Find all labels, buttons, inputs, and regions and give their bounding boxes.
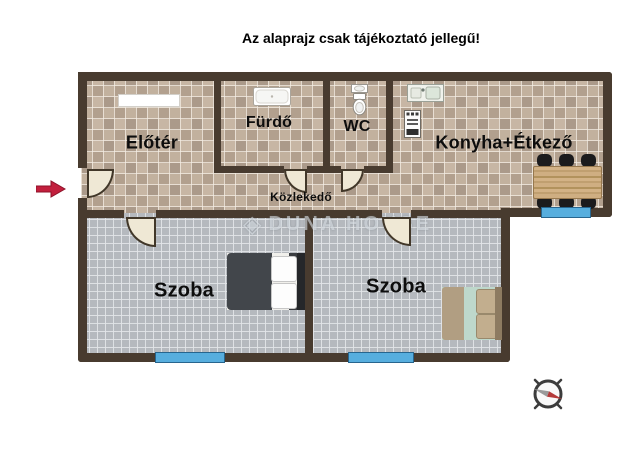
window-kitchen — [541, 207, 591, 218]
bed-icon — [227, 253, 305, 310]
room-label-szoba-1: Szoba — [154, 280, 214, 303]
wall-wet-bottom-c — [364, 166, 393, 173]
entrance-arrow-icon — [36, 180, 66, 198]
wall-left-upper — [78, 72, 87, 168]
wall-wc-right — [386, 77, 393, 173]
bed-headboard — [495, 287, 502, 340]
room-label-szoba-2: Szoba — [366, 276, 426, 299]
stove-icon — [404, 110, 421, 138]
window-szoba1 — [155, 352, 225, 363]
hall-cabinet-icon — [118, 94, 180, 107]
wall-left-lower — [78, 198, 87, 362]
bed-headboard — [297, 253, 305, 310]
wall-szoba2-right — [501, 208, 510, 362]
wall-furdo-left — [214, 77, 221, 173]
room-label-elotér: Előtér — [126, 133, 178, 154]
room-label-wc: WC — [343, 118, 370, 136]
wall-bottom — [78, 353, 510, 362]
bed-pillow — [271, 256, 297, 282]
dining-table-icon — [533, 166, 602, 199]
floor-plan: Az alaprajz csak tájékoztató jellegű! ◈ … — [0, 0, 640, 450]
room-label-furdo: Fürdő — [246, 114, 292, 132]
diamond-icon: ◈ — [243, 215, 261, 235]
room-label-konyha-etkezo: Konyha+Étkező — [435, 133, 572, 154]
room-label-kozlekedo: Közlekedő — [270, 190, 332, 204]
page-title: Az alaprajz csak tájékoztató jellegű! — [81, 30, 640, 46]
compass-icon — [524, 372, 574, 422]
bed-blanket — [442, 287, 464, 340]
wall-hall-a — [87, 210, 124, 218]
wall-wet-bottom-a — [214, 166, 284, 173]
kitchen-sink-icon — [407, 84, 444, 102]
bathtub-icon — [253, 87, 291, 106]
wall-furdo-wc — [323, 77, 330, 173]
wall-right — [603, 72, 612, 217]
window-szoba2 — [348, 352, 414, 363]
wc-sink-icon — [351, 84, 368, 93]
bed-pillow — [271, 283, 297, 309]
wall-top — [78, 72, 612, 81]
bed-icon — [442, 287, 502, 340]
wall-wet-bottom-b — [307, 166, 341, 173]
bed-blanket — [227, 253, 272, 310]
toilet-icon — [351, 93, 368, 116]
